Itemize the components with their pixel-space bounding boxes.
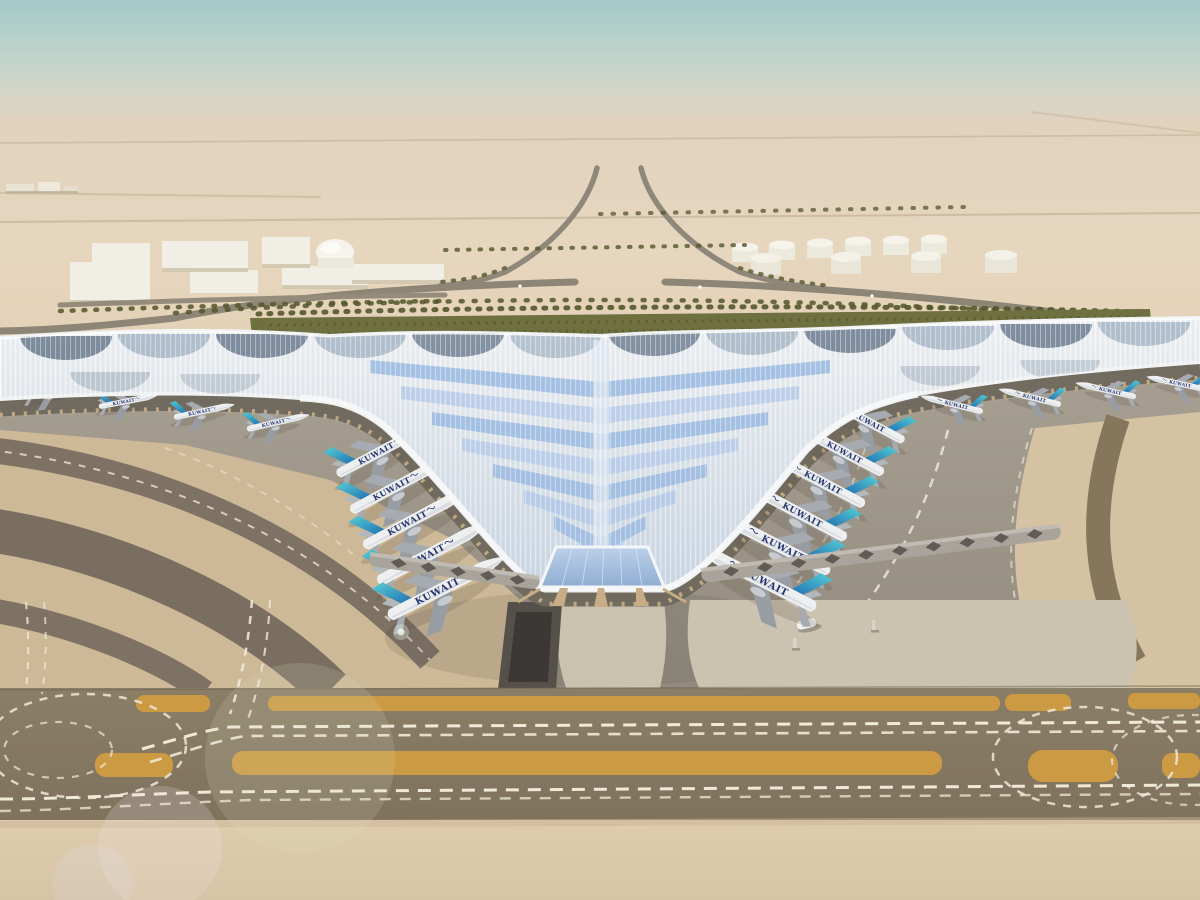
airport-aerial-render: KUWAIT KUWAIT (0, 0, 1200, 900)
ramp-cut (498, 602, 562, 690)
sky (0, 0, 1200, 130)
dome-building (316, 239, 354, 268)
